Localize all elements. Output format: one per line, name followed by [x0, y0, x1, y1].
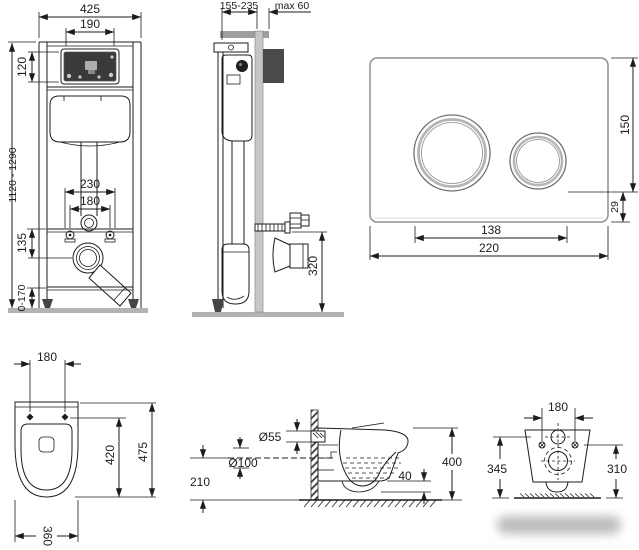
- bolt-mark-left: [27, 414, 34, 421]
- dim-frame-width: 425: [80, 2, 100, 16]
- frame-front-dimensions: 425 190 120 1120 - 1290 230 180 135 0-17…: [7, 2, 141, 311]
- inlet-spigot: [311, 431, 325, 442]
- dim-opening-height: 120: [15, 57, 29, 77]
- ground-hatch-side: [299, 500, 462, 507]
- frame-foot-side: [212, 299, 224, 312]
- floor-side: [192, 312, 344, 317]
- frame-side-structure: [192, 31, 344, 317]
- flush-plate-body: [370, 58, 608, 222]
- wall-hatch: [311, 410, 318, 500]
- dim-rear-inlet-height: 345: [487, 462, 507, 476]
- bowl-top-dimensions: 180 475 420 360: [14, 350, 156, 546]
- dim-trap-gap: 40: [398, 469, 412, 483]
- bolt-holes-rear: [539, 442, 578, 448]
- dim-fixing-width: 230: [80, 177, 100, 191]
- dim-rear-fixing: 180: [548, 400, 568, 414]
- dim-drain-height: 320: [306, 256, 320, 276]
- trap-elbow: [222, 244, 249, 304]
- flush-button-small: [510, 133, 566, 189]
- watermark-blur: [497, 516, 621, 534]
- dim-mount-height: 400: [442, 455, 462, 469]
- dim-outlet-height: 210: [190, 475, 210, 489]
- flush-button-large: [414, 115, 490, 191]
- ground-hatch-rear: [492, 494, 623, 499]
- installation-diagram: 425 190 120 1120 - 1290 230 180 135 0-17…: [0, 0, 639, 550]
- cistern-side: [222, 55, 252, 141]
- dim-plate-edge-offset: 29: [609, 201, 621, 213]
- wall-section: [255, 31, 263, 312]
- bowl-top-view: 180 475 420 360: [14, 350, 156, 546]
- dim-wall-max: max 60: [275, 0, 310, 12]
- fixing-bolts: [65, 231, 115, 242]
- frame-front-structure: [8, 42, 148, 313]
- dim-inlet-diameter: Ø55: [259, 430, 282, 444]
- dim-opening-width: 190: [80, 17, 100, 31]
- bowl-side-view: Ø55 Ø100 210 40 400: [190, 410, 462, 513]
- dim-fixing-inner: 180: [80, 194, 100, 208]
- floor-front: [8, 308, 148, 313]
- frame-front-view: 425 190 120 1120 - 1290 230 180 135 0-17…: [7, 2, 148, 313]
- dim-frame-depth: 155-235: [220, 0, 259, 12]
- dim-plate-height: 150: [618, 115, 632, 135]
- drain-bump: [546, 482, 568, 492]
- plate-recess-block: [263, 49, 284, 83]
- cistern-front: [50, 96, 130, 146]
- bowl-side-structure: [299, 410, 462, 507]
- access-panel: [61, 49, 119, 84]
- frame-top-rail: [214, 43, 248, 52]
- dim-button-span: 138: [481, 223, 501, 237]
- bowl-rear-view: 180 345 310: [487, 400, 627, 534]
- frame-side-view: 155-235 max 60 320: [192, 0, 344, 317]
- frame-foot-left: [42, 299, 53, 308]
- bolt-mark-right: [62, 414, 69, 421]
- bowl-top-structure: [15, 402, 78, 497]
- dim-bowl-inner-depth: 420: [103, 445, 117, 465]
- drain-outlet-front: [73, 243, 131, 306]
- dim-bowl-depth: 475: [136, 442, 150, 462]
- drain-bell: [273, 238, 308, 272]
- dim-bowl-fixing: 180: [37, 350, 57, 364]
- technical-drawing-sheet: 425 190 120 1120 - 1290 230 180 135 0-17…: [0, 0, 639, 550]
- dim-bowl-width: 360: [40, 526, 54, 546]
- frame-foot-right: [128, 299, 139, 308]
- flush-plate-view: 150 29 138 220: [370, 58, 638, 260]
- dim-outlet-diameter: Ø100: [228, 456, 258, 470]
- bowl-side-dimensions: Ø55 Ø100 210 40 400: [190, 419, 462, 513]
- dim-foot-adjust: 0-170: [16, 284, 28, 311]
- dim-install-height: 1120 - 1290: [7, 147, 19, 202]
- dim-plate-width: 220: [479, 241, 499, 255]
- bowl-rear-structure: [492, 423, 623, 534]
- flush-plate-structure: [370, 58, 608, 222]
- bowl-rear-dimensions: 180 345 310: [487, 400, 627, 498]
- dim-rear-fixing-height: 310: [607, 462, 627, 476]
- dim-drain-offset: 135: [15, 233, 29, 253]
